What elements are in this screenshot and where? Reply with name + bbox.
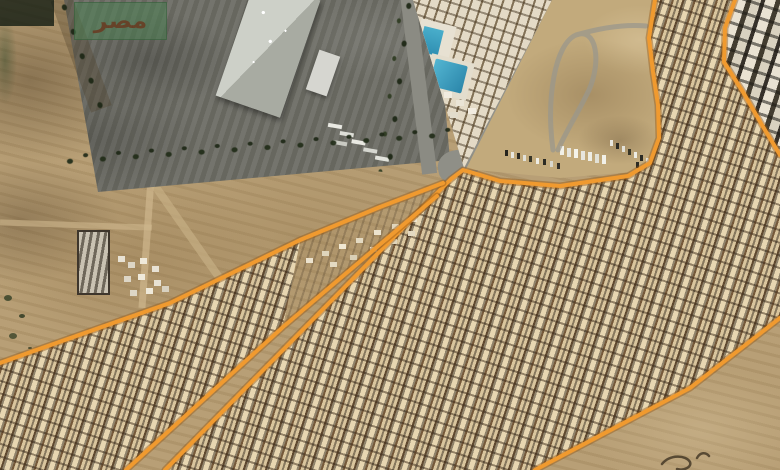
satellite-image: مصر bbox=[0, 0, 780, 470]
boundary-main-boundary-southeast-casing bbox=[535, 318, 780, 470]
boundary-main-boundary-west-casing bbox=[165, 0, 659, 470]
watermark-corner-box bbox=[0, 0, 54, 26]
ground-mark-squiggle bbox=[662, 453, 709, 469]
boundary-main-boundary-east-line bbox=[724, 0, 780, 155]
watermark-text: مصر bbox=[94, 8, 147, 33]
boundary-overlay bbox=[0, 0, 780, 470]
watermark-panel: مصر bbox=[74, 2, 167, 40]
dirt-track-loop bbox=[551, 25, 646, 150]
